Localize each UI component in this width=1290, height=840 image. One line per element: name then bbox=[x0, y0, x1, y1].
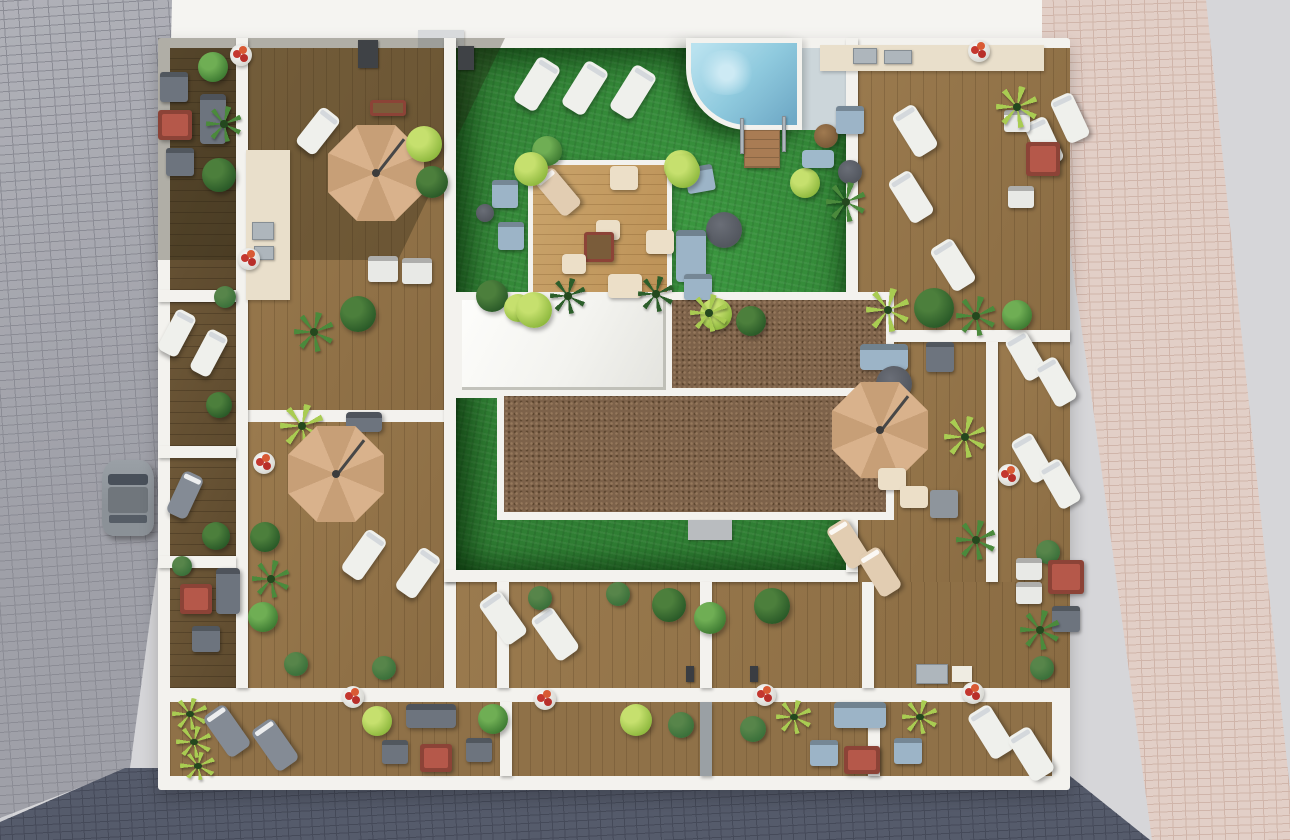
bush bbox=[416, 166, 448, 198]
topiary-ball bbox=[740, 716, 766, 742]
flower-pot bbox=[342, 686, 364, 708]
palm-plant bbox=[180, 752, 216, 780]
palm-plant bbox=[294, 312, 334, 352]
core-gravel-lower bbox=[504, 396, 886, 512]
roof-access-box bbox=[688, 520, 732, 540]
counter-sink bbox=[853, 48, 877, 64]
balcony-divider bbox=[700, 702, 712, 776]
kitchen-grill bbox=[252, 222, 274, 240]
car bbox=[102, 460, 154, 536]
bush bbox=[248, 602, 278, 632]
topiary-ball bbox=[528, 586, 552, 610]
armchair bbox=[926, 342, 954, 372]
bush bbox=[202, 158, 236, 192]
flower-pot bbox=[968, 40, 990, 62]
topiary-ball bbox=[668, 712, 694, 738]
palm-plant bbox=[866, 288, 910, 332]
armchair bbox=[160, 72, 188, 102]
wicker-armchair bbox=[492, 180, 518, 208]
rooftop-plan-render bbox=[0, 0, 1290, 840]
palm-plant bbox=[996, 86, 1038, 128]
bush bbox=[206, 392, 232, 418]
palm-plant bbox=[956, 296, 996, 336]
armchair bbox=[192, 626, 220, 652]
topiary-ball bbox=[606, 582, 630, 606]
bbq-grill bbox=[916, 664, 948, 684]
bush bbox=[736, 306, 766, 336]
bush bbox=[694, 602, 726, 634]
palm-plant bbox=[206, 106, 242, 142]
flower-pot bbox=[238, 248, 260, 270]
bush bbox=[406, 126, 442, 162]
flower-pot bbox=[998, 464, 1020, 486]
fire-table bbox=[706, 212, 742, 248]
coffee-table bbox=[180, 584, 212, 614]
pool-rail bbox=[782, 116, 786, 152]
palm-plant bbox=[944, 416, 986, 458]
bush bbox=[1002, 300, 1032, 330]
flower-pot bbox=[754, 684, 776, 706]
palm-plant bbox=[638, 276, 674, 312]
wicker-table bbox=[814, 124, 838, 148]
bush bbox=[666, 154, 700, 188]
pool-lounger-pad bbox=[802, 150, 834, 168]
parasol bbox=[288, 426, 384, 522]
coffee-table bbox=[420, 744, 452, 772]
topiary-ball bbox=[1030, 656, 1054, 680]
flower-pot bbox=[962, 682, 984, 704]
bush bbox=[514, 152, 548, 186]
seat-cushion bbox=[608, 274, 642, 298]
sofa bbox=[216, 568, 240, 614]
wicker-armchair bbox=[836, 106, 864, 134]
topiary-ball bbox=[172, 556, 192, 576]
bush bbox=[250, 522, 280, 552]
seat-cushion bbox=[646, 230, 674, 254]
side-bench bbox=[370, 100, 406, 116]
armchair bbox=[466, 738, 492, 762]
storage-box bbox=[952, 666, 972, 682]
bush bbox=[790, 168, 820, 198]
flower-pot bbox=[534, 688, 556, 710]
wicker-armchair bbox=[498, 222, 524, 250]
flower-pot bbox=[230, 44, 252, 66]
bush bbox=[516, 292, 552, 328]
palm-plant bbox=[1020, 610, 1060, 650]
garden-light bbox=[458, 46, 474, 70]
divider-wall bbox=[444, 38, 456, 582]
garden-chair bbox=[1016, 558, 1042, 580]
side-table bbox=[476, 204, 494, 222]
bush bbox=[340, 296, 376, 332]
topiary-ball bbox=[372, 656, 396, 680]
parasol bbox=[832, 382, 928, 478]
side-table bbox=[838, 160, 862, 184]
palm-plant bbox=[956, 520, 996, 560]
divider-wall bbox=[700, 582, 712, 688]
sofa bbox=[406, 704, 456, 728]
coffee-table bbox=[844, 746, 880, 774]
divider-wall bbox=[158, 556, 236, 568]
dining-table bbox=[1026, 142, 1060, 176]
wicker-armchair bbox=[810, 740, 838, 766]
divider-wall bbox=[862, 582, 874, 688]
armchair bbox=[368, 256, 398, 282]
coffee-table bbox=[1048, 560, 1084, 594]
chillout-table bbox=[584, 232, 614, 262]
wicker-armchair bbox=[894, 738, 922, 764]
divider-wall bbox=[158, 446, 236, 458]
topiary-ball bbox=[284, 652, 308, 676]
flower-pot bbox=[253, 452, 275, 474]
garden-chair bbox=[1008, 186, 1034, 208]
bush bbox=[362, 706, 392, 736]
palm-plant bbox=[252, 560, 290, 598]
divider-wall bbox=[444, 570, 858, 582]
seat-cushion bbox=[610, 166, 638, 190]
pool-rail bbox=[740, 118, 744, 154]
light-post bbox=[686, 666, 694, 682]
bush bbox=[754, 588, 790, 624]
seat-cushion bbox=[900, 486, 928, 508]
light-post bbox=[750, 666, 758, 682]
bush bbox=[914, 288, 954, 328]
palm-plant bbox=[550, 278, 586, 314]
coffee-table bbox=[158, 110, 192, 140]
bush bbox=[202, 522, 230, 550]
bush bbox=[620, 704, 652, 736]
wicker-sofa bbox=[834, 702, 886, 728]
bush bbox=[198, 52, 228, 82]
bush bbox=[652, 588, 686, 622]
armchair bbox=[166, 148, 194, 176]
pool-steps bbox=[744, 130, 780, 168]
seat-cushion bbox=[562, 254, 586, 274]
bush bbox=[478, 704, 508, 734]
side-table bbox=[930, 490, 958, 518]
armchair bbox=[382, 740, 408, 764]
palm-plant bbox=[776, 700, 812, 734]
palm-plant bbox=[902, 700, 938, 734]
palm-plant bbox=[826, 182, 866, 222]
dark-bench bbox=[358, 40, 378, 68]
armchair bbox=[402, 258, 432, 284]
garden-chair bbox=[1016, 582, 1042, 604]
palm-plant bbox=[690, 294, 728, 332]
wicker-sofa bbox=[860, 344, 908, 370]
topiary-ball bbox=[214, 286, 236, 308]
counter-grill bbox=[884, 50, 912, 64]
